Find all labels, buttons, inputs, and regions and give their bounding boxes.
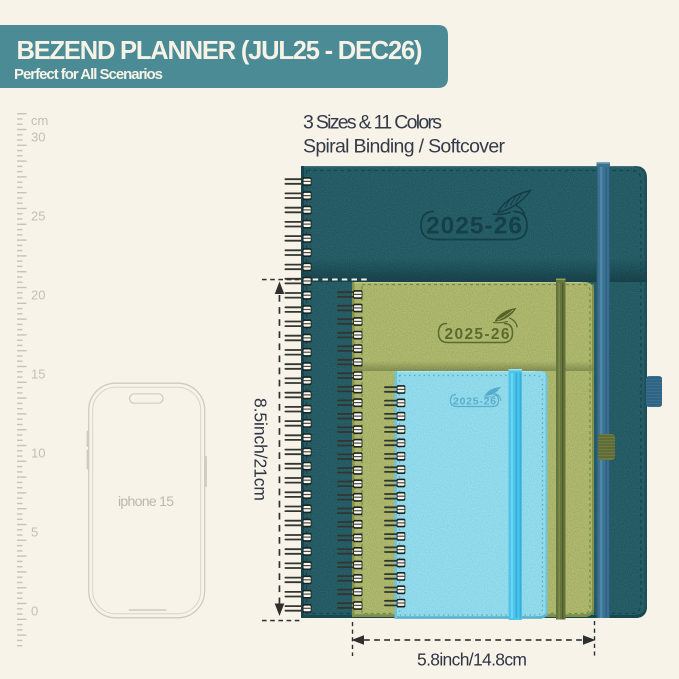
svg-text:cm: cm: [31, 113, 48, 128]
svg-text:5.8inch/14.8cm: 5.8inch/14.8cm: [417, 650, 527, 670]
svg-text:15: 15: [31, 367, 45, 382]
svg-text:5: 5: [31, 525, 38, 540]
svg-text:2025-26: 2025-26: [445, 326, 510, 343]
svg-text:25: 25: [31, 209, 45, 224]
svg-text:8.5inch/21cm: 8.5inch/21cm: [251, 398, 271, 501]
svg-text:10: 10: [31, 446, 45, 461]
svg-text:BEZEND PLANNER (JUL25 - DEC26): BEZEND PLANNER (JUL25 - DEC26): [17, 37, 423, 65]
svg-text:20: 20: [31, 288, 45, 303]
svg-text:iphone 15: iphone 15: [118, 493, 174, 509]
svg-text:3 Sizes & 11 Colors: 3 Sizes & 11 Colors: [303, 112, 442, 134]
svg-text:Perfect for All Scenarios: Perfect for All Scenarios: [14, 66, 163, 83]
svg-text:Spiral Binding / Softcover: Spiral Binding / Softcover: [303, 136, 506, 158]
svg-text:2025-26: 2025-26: [426, 213, 522, 240]
svg-text:30: 30: [31, 130, 45, 145]
svg-text:0: 0: [31, 604, 38, 619]
